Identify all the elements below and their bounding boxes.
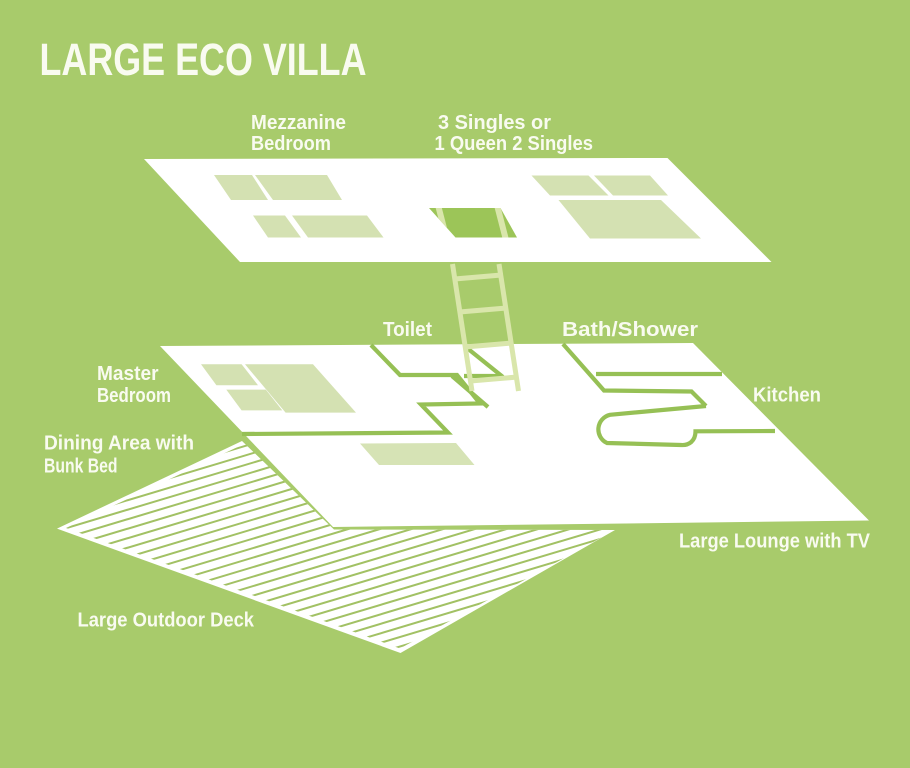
svg-text:LARGE ECO VILLA: LARGE ECO VILLA [40, 34, 367, 85]
svg-text:1 Queen 2 Singles: 1 Queen 2 Singles [435, 132, 594, 155]
svg-text:Toilet: Toilet [383, 318, 432, 341]
svg-text:Large Lounge with TV: Large Lounge with TV [679, 530, 870, 553]
svg-text:3 Singles or: 3 Singles or [438, 111, 551, 134]
svg-text:Bedroom: Bedroom [251, 132, 331, 155]
svg-text:Bunk Bed: Bunk Bed [44, 455, 118, 478]
svg-text:Bedroom: Bedroom [97, 384, 171, 407]
svg-text:Mezzanine: Mezzanine [251, 111, 346, 134]
svg-text:Large Outdoor Deck: Large Outdoor Deck [78, 609, 255, 632]
svg-text:Bath/Shower: Bath/Shower [562, 318, 698, 341]
svg-text:Kitchen: Kitchen [753, 384, 821, 407]
svg-text:Master: Master [97, 362, 159, 385]
svg-text:Dining Area with: Dining Area with [44, 432, 194, 455]
